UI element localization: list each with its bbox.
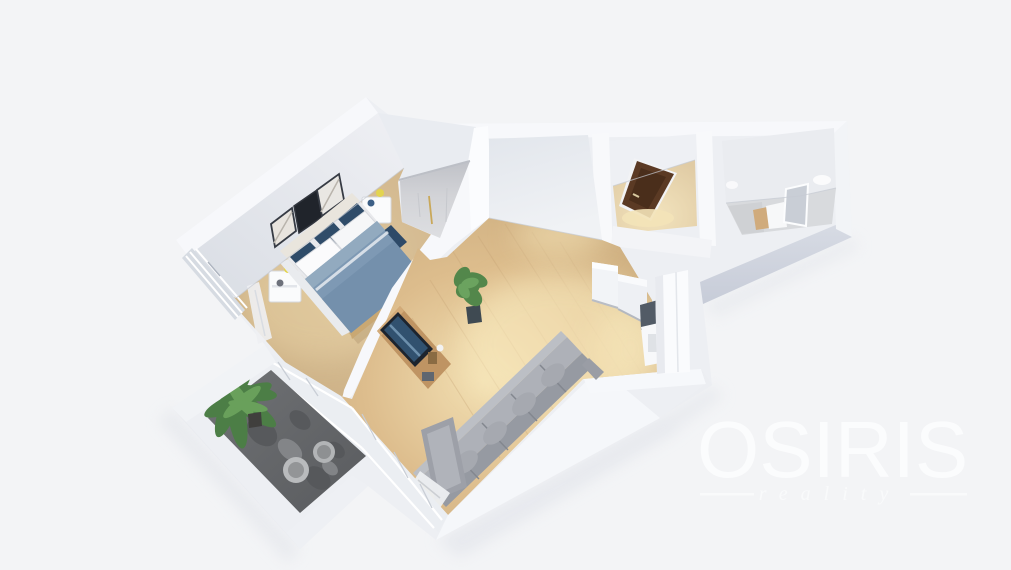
svg-text:OSIRIS: OSIRIS — [697, 405, 968, 494]
svg-text:reality: reality — [759, 483, 901, 505]
